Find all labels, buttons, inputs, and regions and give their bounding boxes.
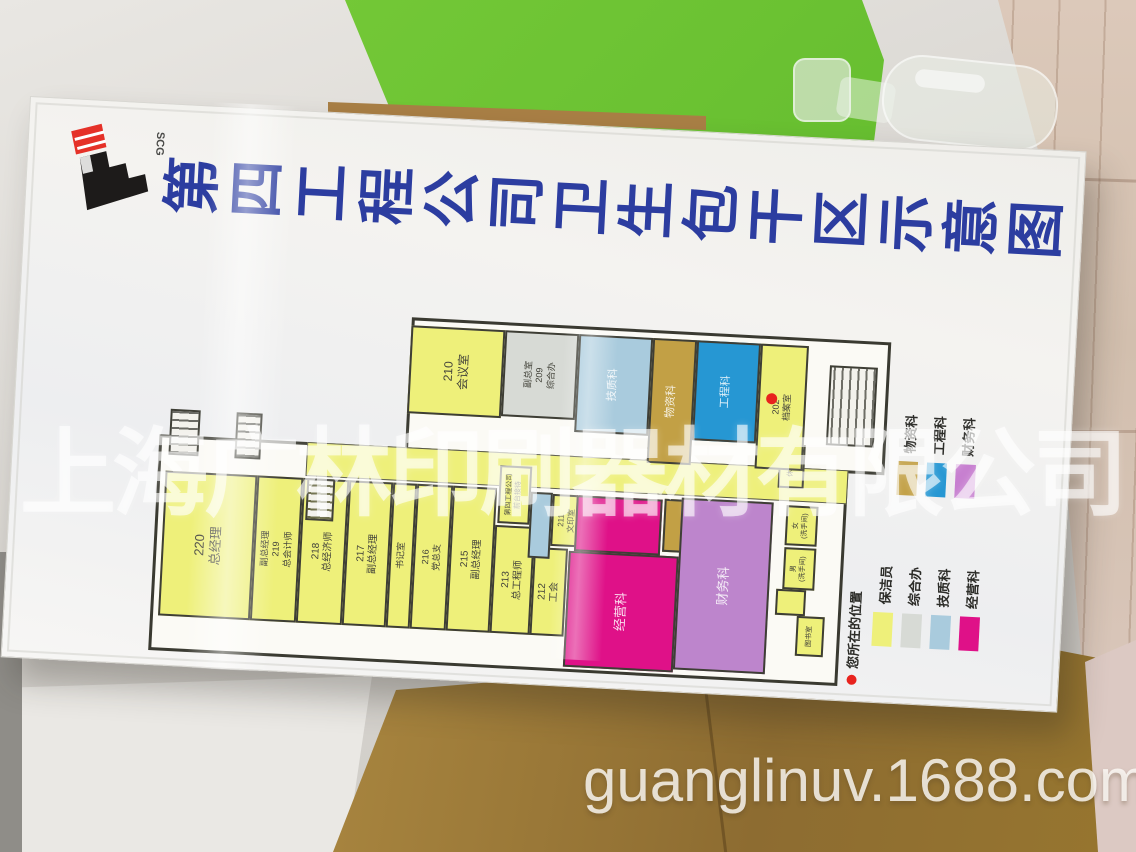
legend-item: 财务科	[954, 388, 980, 499]
company-logo: SCG	[47, 114, 170, 224]
room: 212 工会	[529, 547, 568, 637]
legend-label: 财务科	[957, 417, 978, 457]
legend-item: 工程科	[925, 387, 951, 498]
legend-departments-group: 物资科工程科财务科	[887, 385, 980, 499]
room: 217 副总经理	[342, 480, 394, 627]
legend-swatch	[896, 461, 918, 496]
title-char: 生	[611, 138, 683, 281]
stairs-hatch	[305, 478, 335, 521]
title-char: 工	[287, 121, 359, 264]
stairs-hatch	[234, 412, 262, 459]
photo-of-sign: SCG 第四工程公司卫生包干区示意图 220 总经理副总经理 219 总会计师2…	[0, 0, 1136, 852]
room: 技质科	[574, 334, 653, 436]
room: 副总经理 219 总会计师	[250, 475, 304, 622]
room: 工程科	[692, 340, 761, 443]
legend-item: 经营科	[958, 511, 985, 652]
title-char: 公	[417, 128, 489, 271]
room: 215 副总经理	[446, 486, 498, 633]
title-char: 包	[676, 141, 748, 284]
title-char: 卫	[546, 134, 618, 277]
room: 经营科	[563, 551, 679, 673]
title-char: 第	[157, 114, 229, 257]
sign-face: SCG 第四工程公司卫生包干区示意图 220 总经理副总经理 219 总会计师2…	[1, 96, 1087, 713]
legend-swatch	[925, 462, 947, 497]
legend-rows: 物资科工程科财务科	[896, 385, 980, 499]
room: 第四工程公司 前台接待	[497, 465, 532, 525]
room	[574, 495, 663, 555]
legend-item: 物资科	[896, 385, 922, 496]
legend-location-group: 您所在的位置 保洁员综合办技质科经营科	[841, 505, 985, 692]
legend-item: 技质科	[929, 509, 956, 650]
title-char: 程	[352, 124, 424, 267]
legend-label: 技质科	[932, 568, 953, 608]
legend-swatch	[900, 613, 922, 648]
room: 女 (洗手间)	[785, 505, 819, 547]
room: 副总室 209 综合办	[501, 330, 579, 420]
room	[528, 492, 553, 559]
room	[775, 589, 806, 617]
room: 图书室	[795, 616, 825, 657]
floor-plan: 220 总经理副总经理 219 总会计师218 总经济师217 副总经理书记室2…	[148, 304, 895, 688]
title-char: 干	[741, 145, 813, 288]
room: 物资科	[647, 338, 697, 465]
room: 210 会议室	[407, 325, 505, 418]
title-char: 司	[481, 131, 553, 274]
legend-label: 物资科	[899, 414, 920, 454]
legend-item: 综合办	[900, 507, 927, 648]
legend-label: 综合办	[903, 566, 924, 606]
room: 220 总经理	[158, 471, 257, 621]
scg-logo-icon: SCG	[47, 116, 170, 222]
legend-label: 保洁员	[874, 565, 895, 605]
legend-label: 经营科	[961, 569, 982, 609]
legend-swatch	[958, 616, 980, 651]
legend-swatch	[871, 612, 893, 647]
legend-label: 工程科	[928, 416, 949, 456]
title-char: 区	[806, 148, 878, 291]
title-char: 意	[936, 155, 1008, 298]
title-char: 示	[871, 151, 943, 294]
room: 男 (洗手间)	[782, 547, 816, 591]
title-char: 图	[1001, 158, 1073, 301]
sign-board: SCG 第四工程公司卫生包干区示意图 220 总经理副总经理 219 总会计师2…	[1, 96, 1087, 713]
title-char: 四	[222, 117, 294, 260]
legend-rows: 保洁员综合办技质科经营科	[869, 506, 985, 691]
legend-swatch	[954, 464, 976, 499]
room: 财务科	[673, 498, 774, 675]
room: 202 档案室	[755, 344, 809, 471]
you-are-here-legend-dot	[846, 675, 857, 686]
legend-item: 保洁员	[871, 506, 898, 647]
stairs-hatch	[826, 365, 878, 447]
legend-swatch	[929, 615, 951, 650]
stairs-hatch	[168, 409, 200, 457]
legend-heading-label: 您所在的位置	[842, 590, 865, 669]
